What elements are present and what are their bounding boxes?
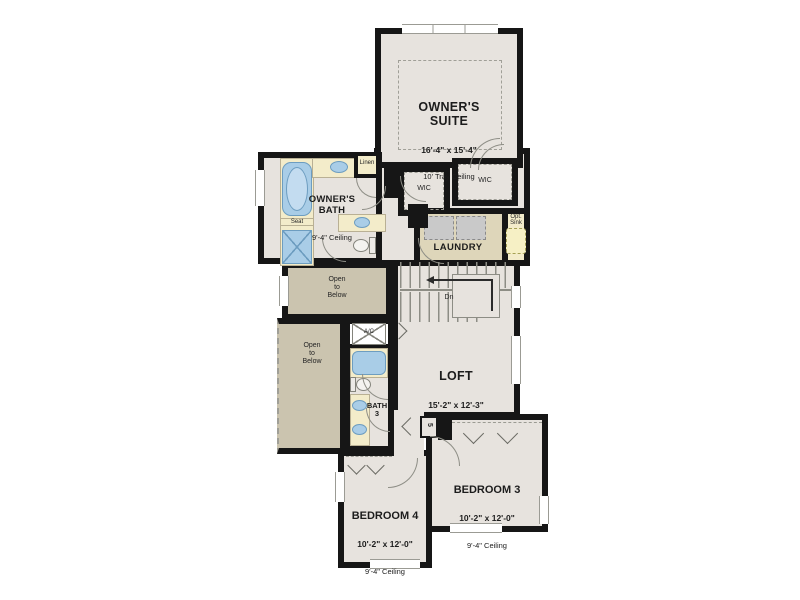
stairs-down-arrow-line [434,279,492,281]
room-name: LOFT [398,369,514,383]
room-ceiling: 9'-4" Ceiling [338,568,432,576]
closet-shelf-line [346,456,392,458]
opt-sink-label: Opt. Sink [502,214,530,227]
bedroom3-label: BEDROOM 3 10'-2" x 12'-0" 9'-4" Ceiling [426,466,548,568]
room-name: OWNER'S SUITE [375,100,523,128]
room-dims: 10'-2" x 12'-0" [338,540,432,550]
wic-right-label: WIC [452,177,518,185]
open-below-upper-label: Open to Below [312,276,362,299]
dryer [456,216,486,240]
room-dims: 15'-2" x 12'-3" [398,401,514,411]
bedroom4-label: BEDROOM 4 10'-2" x 12'-0" 9'-4" Ceiling [338,492,432,594]
washer [424,216,454,240]
floor-plan: 5 OWNER'S SUITE 16'-4" x 15'-4" 10' Tray… [0,0,800,600]
loft-label: LOFT 15'-2" x 12'-3" [398,351,514,428]
bath3-label: BATH 3 [362,402,392,419]
room-name: BEDROOM 4 [338,510,432,522]
room-dims: 10'-2" x 12'-0" [426,514,548,524]
ac-label: A/C [352,329,386,335]
open-below-lower-area [277,318,346,454]
window [255,170,265,206]
window [511,286,521,308]
stairs-railing [452,274,500,318]
stairs-dn-label: Dn [440,294,458,302]
window [402,24,498,34]
room-name: BEDROOM 3 [426,484,548,496]
laundry-label: LAUNDRY [414,243,502,254]
arrow-head-icon [426,276,434,284]
sink [352,424,367,435]
optional-sink-outline [506,228,526,254]
owners-bath-label: OWNER'S BATH 9'-4" Ceiling [292,177,372,260]
wall-stub [408,204,428,228]
linen-label: Linen [355,160,379,166]
room-name: OWNER'S BATH [292,195,372,216]
room-ceiling: 9'-4" Ceiling [426,542,548,550]
sink [330,161,348,173]
bathtub [352,351,386,375]
stairs-down-arrow-tail [491,279,493,311]
window [279,276,289,306]
room-ceiling: 9'-4" Ceiling [292,234,372,242]
room-dims: 16'-4" x 15'-4" [375,146,523,156]
wic-left-label: WIC [398,185,450,193]
open-below-lower-label: Open to Below [286,342,338,365]
